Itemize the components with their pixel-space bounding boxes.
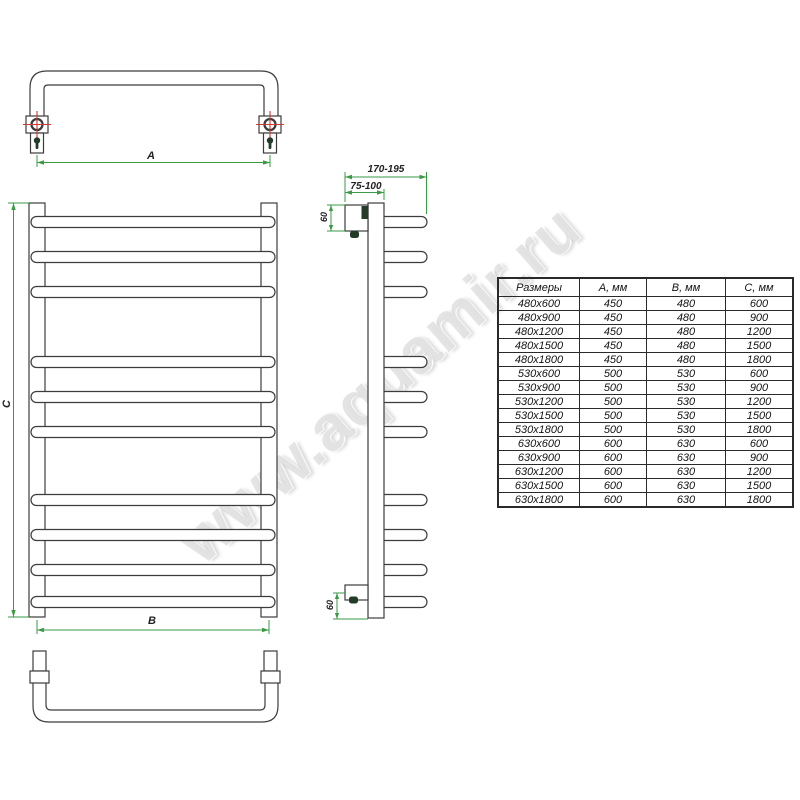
dim-label-wall-range: 75-100 <box>342 181 390 192</box>
table-row: 530x600500530600 <box>498 367 793 381</box>
table-cell: 450 <box>580 311 647 325</box>
wall-bracket-right <box>256 111 284 153</box>
table-cell: 450 <box>580 339 647 353</box>
table-cell: 1200 <box>726 395 794 409</box>
table-row: 530x900500530900 <box>498 381 793 395</box>
table-cell: 450 <box>580 325 647 339</box>
dim-label-top-offset: 60 <box>319 208 329 226</box>
crosshair-icon <box>23 111 51 138</box>
table-cell: 630 <box>647 479 726 493</box>
dim-label-bottom-offset: 60 <box>325 596 335 614</box>
union-fitting-right <box>261 651 280 683</box>
table-cell: 630x1800 <box>498 493 580 508</box>
table-cell: 600 <box>580 465 647 479</box>
table-cell: 450 <box>580 353 647 367</box>
left-collector <box>29 203 45 617</box>
front-view <box>8 203 277 634</box>
table-cell: 600 <box>580 493 647 508</box>
table-cell: 630 <box>647 465 726 479</box>
size-table: РазмерыА, ммВ, ммС, мм480x60045048060048… <box>497 277 794 508</box>
rungs-front <box>31 217 275 608</box>
table-cell: 600 <box>726 437 794 451</box>
table-row: 480x15004504801500 <box>498 339 793 353</box>
collector-profile <box>368 203 384 618</box>
table-cell: 900 <box>726 381 794 395</box>
column-header: С, мм <box>726 278 794 297</box>
table-row: 630x15006006301500 <box>498 479 793 493</box>
table-row: 630x12006006301200 <box>498 465 793 479</box>
tube-inner-line <box>46 683 265 710</box>
table-cell: 600 <box>580 437 647 451</box>
table-cell: 500 <box>580 381 647 395</box>
tube-inner-line <box>44 85 264 118</box>
table-cell: 630x1500 <box>498 479 580 493</box>
column-header: В, мм <box>647 278 726 297</box>
table-cell: 480x1800 <box>498 353 580 367</box>
table-cell: 530x1800 <box>498 423 580 437</box>
table-cell: 900 <box>726 311 794 325</box>
table-cell: 480 <box>647 297 726 311</box>
hook-icon <box>350 231 359 238</box>
table-row: 530x18005005301800 <box>498 423 793 437</box>
column-header: А, мм <box>580 278 647 297</box>
table-cell: 1800 <box>726 353 794 367</box>
mount-bracket-top <box>345 205 368 238</box>
table-cell: 530x900 <box>498 381 580 395</box>
table-cell: 530 <box>647 395 726 409</box>
table-row: 480x600450480600 <box>498 297 793 311</box>
hook-icon <box>349 597 358 604</box>
dim-label-a: A <box>142 150 160 162</box>
table-cell: 1500 <box>726 409 794 423</box>
table-cell: 480 <box>647 339 726 353</box>
table-cell: 900 <box>726 451 794 465</box>
table-cell: 630x1200 <box>498 465 580 479</box>
dim-label-depth-range: 170-195 <box>356 164 416 175</box>
bottom-view <box>30 651 280 722</box>
table-row: 630x600600630600 <box>498 437 793 451</box>
table-cell: 480x1200 <box>498 325 580 339</box>
table-cell: 1200 <box>726 325 794 339</box>
table-cell: 480x1500 <box>498 339 580 353</box>
table-cell: 480x900 <box>498 311 580 325</box>
table-cell: 600 <box>580 479 647 493</box>
table-cell: 500 <box>580 367 647 381</box>
table-cell: 500 <box>580 395 647 409</box>
table-row: 480x18004504801800 <box>498 353 793 367</box>
table-cell: 1200 <box>726 465 794 479</box>
table-cell: 530x1500 <box>498 409 580 423</box>
technical-drawing-page: www.aquamir.ru <box>0 0 800 800</box>
table-cell: 500 <box>580 423 647 437</box>
right-collector <box>261 203 277 617</box>
table-cell: 630 <box>647 437 726 451</box>
table-cell: 530 <box>647 409 726 423</box>
table-cell: 1800 <box>726 493 794 508</box>
table-cell: 1500 <box>726 479 794 493</box>
table-cell: 530x1200 <box>498 395 580 409</box>
union-fitting-left <box>30 651 49 683</box>
table-cell: 530 <box>647 367 726 381</box>
table-cell: 600 <box>726 297 794 311</box>
table-cell: 530 <box>647 381 726 395</box>
dim-label-b: B <box>143 615 161 627</box>
table-cell: 630 <box>647 493 726 508</box>
wall-bracket-left <box>23 111 51 153</box>
mount-bracket-bottom <box>345 585 368 604</box>
dim-label-c: C <box>1 395 13 413</box>
table-cell: 630 <box>647 451 726 465</box>
dimension-top-offset <box>327 205 345 231</box>
table-row: 480x900450480900 <box>498 311 793 325</box>
table-row: 530x15005005301500 <box>498 409 793 423</box>
table-cell: 480 <box>647 311 726 325</box>
table-cell: 1800 <box>726 423 794 437</box>
table-cell: 500 <box>580 409 647 423</box>
column-header: Размеры <box>498 278 580 297</box>
table-row: 630x900600630900 <box>498 451 793 465</box>
table-header-row: РазмерыА, ммВ, ммС, мм <box>498 278 793 297</box>
table-cell: 530x600 <box>498 367 580 381</box>
table-cell: 480 <box>647 353 726 367</box>
table-row: 530x12005005301200 <box>498 395 793 409</box>
tube-outer-line <box>33 683 278 722</box>
table-cell: 480x600 <box>498 297 580 311</box>
table-cell: 600 <box>726 367 794 381</box>
table-cell: 630x600 <box>498 437 580 451</box>
table-row: 630x18006006301800 <box>498 493 793 508</box>
crosshair-icon <box>256 111 284 138</box>
rungs-side <box>378 217 427 608</box>
tube-outer-line <box>30 71 278 118</box>
table-cell: 1500 <box>726 339 794 353</box>
table-cell: 450 <box>580 297 647 311</box>
side-view <box>327 172 427 619</box>
table-cell: 630x900 <box>498 451 580 465</box>
table-cell: 480 <box>647 325 726 339</box>
table-row: 480x12004504801200 <box>498 325 793 339</box>
table-cell: 600 <box>580 451 647 465</box>
table-cell: 530 <box>647 423 726 437</box>
